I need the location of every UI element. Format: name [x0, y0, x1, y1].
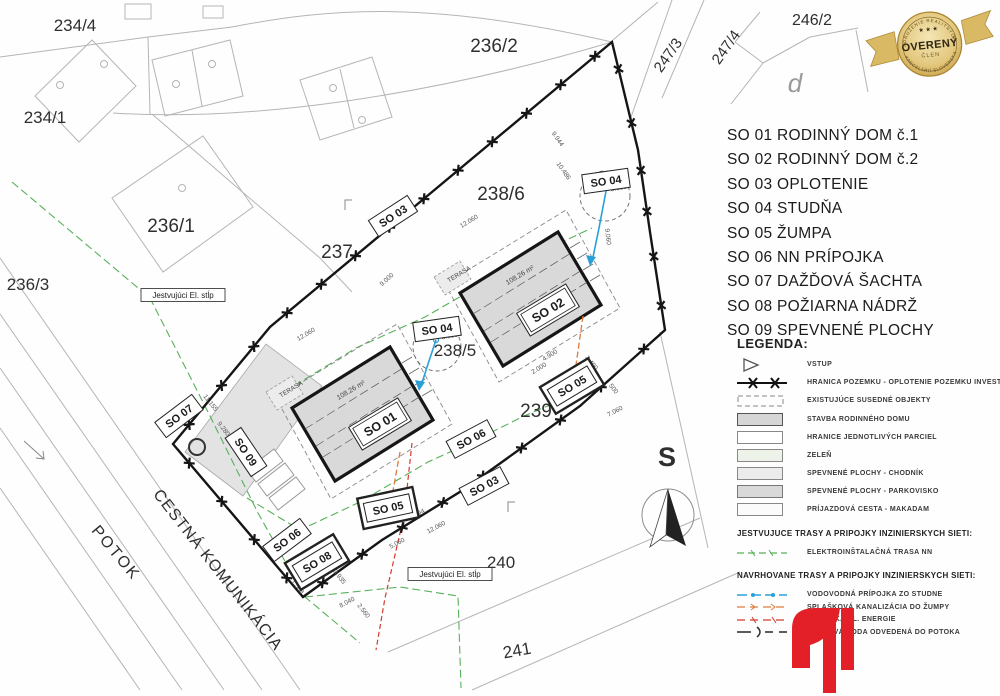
ribbon-right	[961, 11, 994, 45]
legend-item: SPEVNENÉ PLOCHY - PARKOVISKO	[737, 485, 995, 499]
house-so01	[292, 347, 433, 481]
fence-symbol-icon	[737, 376, 787, 390]
objects-list: SO 01 RODINNÝ DOM č.1SO 02 RODINNÝ DOM č…	[727, 124, 934, 344]
north-arrow	[642, 489, 694, 547]
logo-mark-icon	[792, 608, 854, 693]
water-line	[592, 186, 607, 262]
object-label-jestvujúci-el.-stĺp: Jestvujúci El. stĺp	[141, 289, 225, 302]
legend-item-label: VODOVODNÁ PRÍPOJKA ZO STUDNE	[807, 591, 943, 598]
power-symbol-icon	[737, 615, 787, 625]
dimension-label: 4.900	[541, 348, 559, 363]
legend-item: PRÍPOJKA EL. ENERGIE	[737, 614, 995, 625]
legend-item-label: HRANICE JEDNOTLIVÝCH PARCIEL	[807, 434, 937, 441]
dimension-label: 9.944	[550, 130, 565, 148]
parcel-label: POTOK	[88, 522, 143, 583]
legend-item-label: STAVBA RODINNÉHO DOMU	[807, 416, 910, 423]
legend-item: EXISTUJÚCE SUSEDNÉ OBJEKTY	[737, 394, 995, 408]
dimension-label: 11.155	[201, 393, 219, 413]
parcel-label: S	[658, 442, 676, 472]
parcel-label: 238/6	[477, 184, 525, 205]
dimension-label: 10.486	[555, 161, 572, 182]
legend-item-label: EXISTUJÚCE SUSEDNÉ OBJEKTY	[807, 397, 931, 404]
whiterect-symbol-icon	[737, 431, 787, 444]
legend-item: STAVBA RODINNÉHO DOMU	[737, 412, 995, 426]
object-label-so-03: SO 03	[368, 195, 417, 236]
object-label-so-06: SO 06	[446, 420, 496, 459]
object-label-so-05: SO 05	[540, 358, 604, 414]
legend-item: SPEVNENÉ PLOCHY - CHODNÍK	[737, 467, 995, 481]
legend-item: VSTUP	[737, 358, 995, 372]
legend: LEGENDA: VSTUPHRANICA POZEMKU - OPLOTENI…	[737, 336, 995, 639]
parcel-label: 241	[501, 639, 532, 663]
legend-item: HRANICE JEDNOTLIVÝCH PARCIEL	[737, 430, 995, 444]
parcel-label: 238/5	[434, 341, 477, 360]
legend-item: DAŽĎOVÁ VODA ODVEDENÁ DO POTOKA	[737, 627, 995, 638]
parcel-label: 234/1	[24, 108, 67, 127]
sewer-symbol-icon	[737, 602, 787, 612]
ribbon-left	[865, 32, 899, 67]
object-label-jestvujúci-el.-stĺp: Jestvujúci El. stĺp	[408, 568, 492, 581]
objects-list-item: SO 05 ŽUMPA	[727, 222, 934, 246]
house-so02	[460, 232, 601, 366]
parcel-label: 239	[520, 401, 552, 422]
legend-item-label: ZELEŇ	[807, 452, 832, 459]
legend-item-label: HRANICA POZEMKU - OPLOTENIE POZEMKU INVE…	[807, 379, 1000, 386]
legend-item-label: SPEVNENÉ PLOCHY - CHODNÍK	[807, 470, 924, 477]
parcel-label: CESTNÁ KOMUNIKÁCIA	[149, 485, 287, 654]
parcel-label: 237	[321, 242, 353, 263]
legend-item: VODOVODNÁ PRÍPOJKA ZO STUDNE	[737, 589, 995, 600]
midrect-symbol-icon	[737, 485, 787, 498]
stream-flow-arrow	[24, 441, 44, 459]
objects-list-item: SO 02 RODINNÝ DOM č.2	[727, 148, 934, 172]
parcel-label: 236/1	[147, 216, 195, 237]
nnline-symbol-icon	[737, 548, 787, 558]
legend-item-label: ELEKTROINŠTALAČNÁ TRASA NN	[807, 549, 932, 556]
rain-symbol-icon	[737, 626, 787, 638]
legend-item: SPLAŠKOVÁ KANALIZÁCIA DO ŽUMPY	[737, 602, 995, 613]
parcel-label: 246/2	[792, 12, 832, 29]
dimension-label: 500	[607, 383, 619, 396]
dimension-label: 9.000	[379, 272, 396, 288]
dimension-label: 12.060	[296, 326, 317, 342]
legend-proposed-title: NAVRHOVANE TRASY A PRIPOJKY INZINIERSKYC…	[737, 571, 995, 580]
grayrect-symbol-icon	[737, 413, 787, 426]
dimension-label: 5.060	[388, 537, 406, 551]
legend-item: PRÍJAZDOVÁ CESTA - MAKADAM	[737, 503, 995, 517]
objects-list-item: SO 03 OPLOTENIE	[727, 173, 934, 197]
dimension-label: 12.060	[426, 520, 447, 536]
legend-item-label: SPEVNENÉ PLOCHY - PARKOVISKO	[807, 488, 939, 495]
parcel-label: 247/4	[709, 27, 744, 68]
dimension-label: 2.560	[355, 603, 371, 620]
legend-item: HRANICA POZEMKU - OPLOTENIE POZEMKU INVE…	[737, 376, 995, 390]
dimension-label: 9.060	[603, 228, 612, 245]
dimension-label: 7.060	[606, 405, 624, 419]
objects-list-item: SO 07 DAŽĎOVÁ ŠACHTA	[727, 270, 934, 294]
agency-logo	[781, 600, 861, 696]
legend-item: ZELEŇ	[737, 448, 995, 462]
object-label-text: Jestvujúci El. stĺp	[152, 291, 214, 300]
legend-title: LEGENDA:	[737, 336, 995, 351]
parcel-label: 234/4	[54, 16, 97, 35]
water-symbol-icon	[737, 590, 787, 600]
dashedrect-symbol-icon	[737, 394, 787, 408]
legend-item-label: PRÍJAZDOVÁ CESTA - MAKADAM	[807, 506, 929, 513]
greenrect-symbol-icon	[737, 449, 787, 462]
parcel-label: 236/3	[7, 275, 50, 294]
parcel-label: 236/2	[470, 36, 518, 57]
parcel-label: d	[788, 68, 804, 98]
plan-labels: 234/4234/1236/2236/1236/3237238/6238/523…	[7, 12, 832, 662]
site-plan-document: 234/4234/1236/2236/1236/3237238/6238/523…	[0, 0, 1000, 696]
legend-item: ELEKTROINŠTALAČNÁ TRASA NN	[737, 547, 995, 558]
objects-list-item: SO 01 RODINNÝ DOM č.1	[727, 124, 934, 148]
object-label-text: Jestvujúci El. stĺp	[419, 570, 481, 579]
legend-item-label: VSTUP	[807, 361, 832, 368]
dimension-label: 12.060	[459, 213, 480, 229]
dimension-label: 2.000	[530, 361, 548, 376]
lightrect-symbol-icon	[737, 467, 787, 480]
entry-symbol-icon	[737, 357, 787, 373]
objects-list-item: SO 04 STUDŇA	[727, 197, 934, 221]
makadam-symbol-icon	[737, 503, 787, 516]
dimension-label: 8.040	[338, 596, 356, 610]
verified-member-badge: ★ ★ ★ OVERENÝ ČLEN ZDRUŽENIE REALITNÝCH …	[859, 0, 1000, 102]
objects-list-item: SO 06 NN PRÍPOJKA	[727, 246, 934, 270]
legend-existing-title: JESTVUJUCE TRASY A PRIPOJKY INZINIERSKYC…	[737, 529, 995, 538]
objects-list-item: SO 08 POŽIARNA NÁDRŽ	[727, 295, 934, 319]
